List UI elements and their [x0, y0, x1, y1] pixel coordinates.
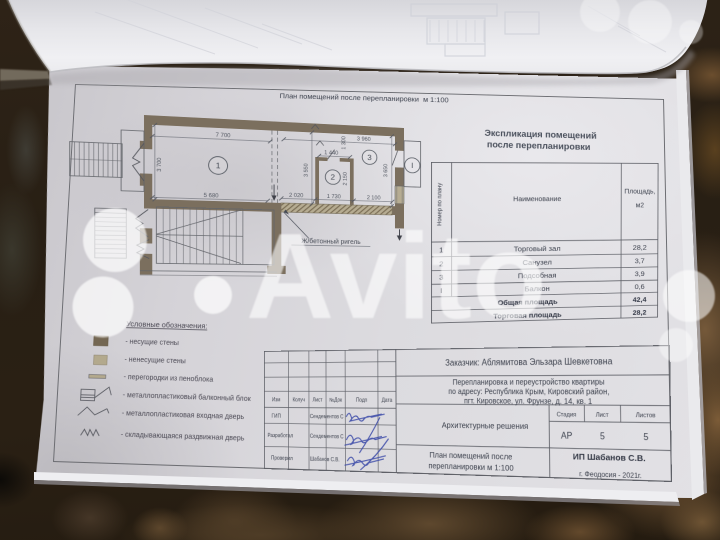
- svg-text:Avito: Avito: [246, 208, 546, 344]
